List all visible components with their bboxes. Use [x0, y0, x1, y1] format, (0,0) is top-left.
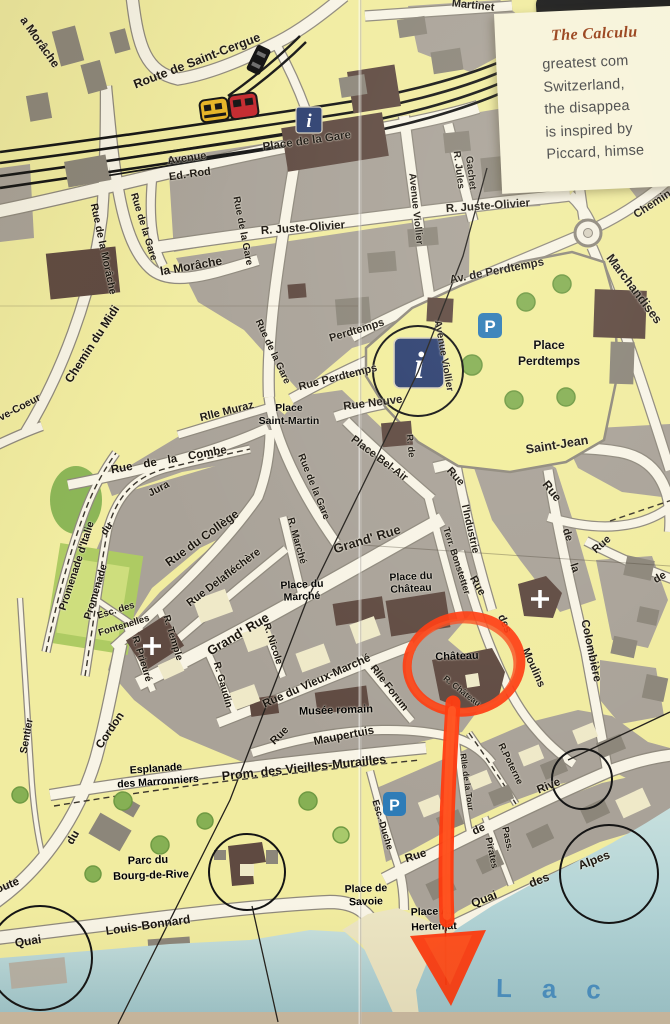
street-label-quai-lb: Quai — [14, 933, 42, 949]
place-label-perdtemps-2: Perdtemps — [518, 355, 580, 367]
street-label-l-industrie: l'Industrie — [459, 504, 480, 555]
street-label-moulins-rue: Rue — [467, 574, 487, 597]
street-label-av-de-perdtemps: Av. de Perdtemps — [449, 257, 545, 287]
place-label-musee-romain: Musée romain — [299, 704, 373, 718]
lake-label: Lac — [496, 975, 631, 1003]
street-label-rive-de: de — [471, 822, 487, 837]
street-label-louis-bonnard: Louis-Bonnard — [105, 913, 191, 937]
street-label-jura-du: du — [99, 521, 115, 538]
street-label-martinet: Martinet — [451, 0, 495, 14]
place-label-a-hertenjat-1: Place A. — [411, 906, 452, 918]
place-label-perdtemps-1: Place — [533, 339, 564, 351]
street-label-pirates: Pirates — [483, 837, 499, 870]
street-label-alpes: Alpes — [577, 849, 612, 872]
street-label-a-morache: a Morâche — [18, 14, 62, 70]
place-label-a-hertenjat-2: Hertenjat — [411, 921, 457, 933]
street-label-r-chateau: R. Château — [442, 674, 482, 708]
street-label-rue-delaflechere: Rue Delafléchère — [185, 547, 263, 610]
place-label-saint-martin-1: Place — [275, 403, 302, 414]
street-label-chemin-du-midi: Chemin du Midi — [63, 303, 122, 384]
street-label-r-de: R. de — [404, 434, 416, 458]
street-label-moulins-des: des — [495, 613, 513, 635]
card-title: The Calculu — [551, 19, 670, 45]
street-label-marchandises: Marchandises — [604, 252, 664, 326]
street-label-quai-alpes-quai: Quai — [469, 889, 498, 910]
street-label-r-juste-olivier-2: R. Juste-Olivier — [446, 198, 531, 215]
street-label-cordon: Cordon — [95, 711, 127, 751]
street-label-saint-jean: Saint-Jean — [525, 434, 589, 456]
street-label-murailles: Prom. des Vieilles-Murailles — [221, 753, 387, 783]
street-label-place-bel-air: Place Bel-Air — [349, 434, 410, 484]
place-label-bourg-de-rive: Bourg-de-Rive — [113, 869, 189, 883]
street-label-colombiere-la: la — [567, 562, 580, 574]
street-label-rue-right: Rue — [591, 534, 614, 556]
street-label-rlle-de-la-tour: Rlle de la Tour — [459, 753, 475, 812]
street-label-quai-alpes-des: des — [527, 871, 551, 890]
street-label-r-nicole: R. Nicole — [261, 622, 284, 666]
street-label-r-juste-olivier-1: R. Juste-Olivier — [261, 220, 346, 237]
info-card: The Calculu greatest com Switzerland, th… — [494, 3, 670, 194]
street-label-r-gaudin: R. Gaudin — [211, 661, 234, 709]
street-label-perdtemps-frag: Perdtemps — [328, 317, 386, 344]
street-label-rue-de-la-gare-a: Rue de la Gare — [128, 192, 158, 262]
street-label-colombiere: Colombière — [578, 619, 602, 683]
street-label-moulins: Moulins — [520, 647, 547, 689]
street-label-r-temple: R. Temple — [160, 614, 183, 662]
street-label-maupertuis-rue: Rue — [269, 725, 291, 747]
street-label-route: Route — [0, 877, 21, 900]
street-label-rue-de-la-gare-b: Rue de la Gare — [230, 196, 253, 267]
street-label-rue-perdtemps: Rue Perdtemps — [298, 363, 379, 393]
place-label-chateau: Château — [435, 651, 479, 664]
street-label-rue-de-la-morache: Rue de la Morâche — [88, 203, 118, 296]
street-label-rue-industrie-rue: Rue — [444, 466, 466, 489]
place-label-du-chateau-2: Château — [390, 583, 432, 596]
street-label-rlle-muraz: Rlle Muraz — [199, 400, 255, 424]
street-label-rue-du-college: Rue du Collège — [163, 507, 241, 568]
place-label-saint-martin-2: Saint-Martin — [259, 416, 320, 427]
street-label-route-de-saint-cergue: Route de Saint-Cergue — [132, 31, 262, 91]
street-label-jura: Jura — [147, 479, 172, 499]
street-label-colombiere-rue: Rue — [540, 478, 563, 503]
street-label-pass: Pass. — [500, 826, 514, 852]
place-label-de-savoie-2: Savoie — [349, 896, 383, 908]
street-label-rue-de-la-gare-c: Rue de la Gare — [253, 318, 292, 386]
street-label-rlle-forum: Rlle Forum — [368, 663, 410, 713]
street-label-r-prieure: R. Prieuré — [129, 635, 152, 683]
map-photo: i i P P Martinet Route de Saint-Cergue R… — [0, 0, 670, 1024]
place-label-du-marche-2: Marché — [283, 591, 320, 603]
place-label-de-savoie-1: Place de — [345, 883, 388, 895]
street-label-maupertuis: Maupertuis — [313, 726, 375, 749]
street-label-grand-rue-1: Grand' Rue — [205, 611, 271, 658]
street-label-chemin: Chemin — [632, 189, 670, 222]
street-label-la-morache: la Morâche — [159, 255, 223, 278]
street-label-r-poterne: R.Poterne — [496, 742, 524, 786]
street-label-creve-coeur: Crève-Coeur — [0, 393, 42, 432]
street-label-avenue: Avenue — [167, 151, 207, 167]
street-label-rue-neuve: Rue Neuve — [343, 395, 403, 414]
street-label-rue-de-la-combe: Rue de la Combe — [110, 445, 228, 477]
street-label-de-right: de — [652, 570, 669, 586]
street-label-rive-rue: Rue — [404, 848, 428, 866]
street-label-r-marche: R. Marché — [285, 517, 308, 566]
street-label-grand-rue-2: Grand' Rue — [332, 523, 402, 556]
place-label-parc-du: Parc du — [128, 855, 169, 867]
street-label-colombiere-de: de — [560, 527, 574, 543]
street-label-rue-de-la-gare-d: Rue de la Gare — [295, 453, 331, 522]
street-label-ed-rod: Ed.-Rod — [168, 167, 211, 184]
street-label-avenue-viollier-2: Avenue Viollier — [432, 320, 454, 392]
street-label-esc-duche: Esc.-Duche — [370, 799, 394, 851]
street-label-avenue-viollier-1: Avenue Viollier — [406, 173, 423, 245]
street-label-rive: Rive — [536, 777, 563, 797]
street-label-sentier: Sentier — [19, 718, 36, 755]
street-label-place-de-la-gare: Place de la Gare — [262, 130, 352, 154]
street-label-cordon-du: du — [66, 829, 83, 847]
